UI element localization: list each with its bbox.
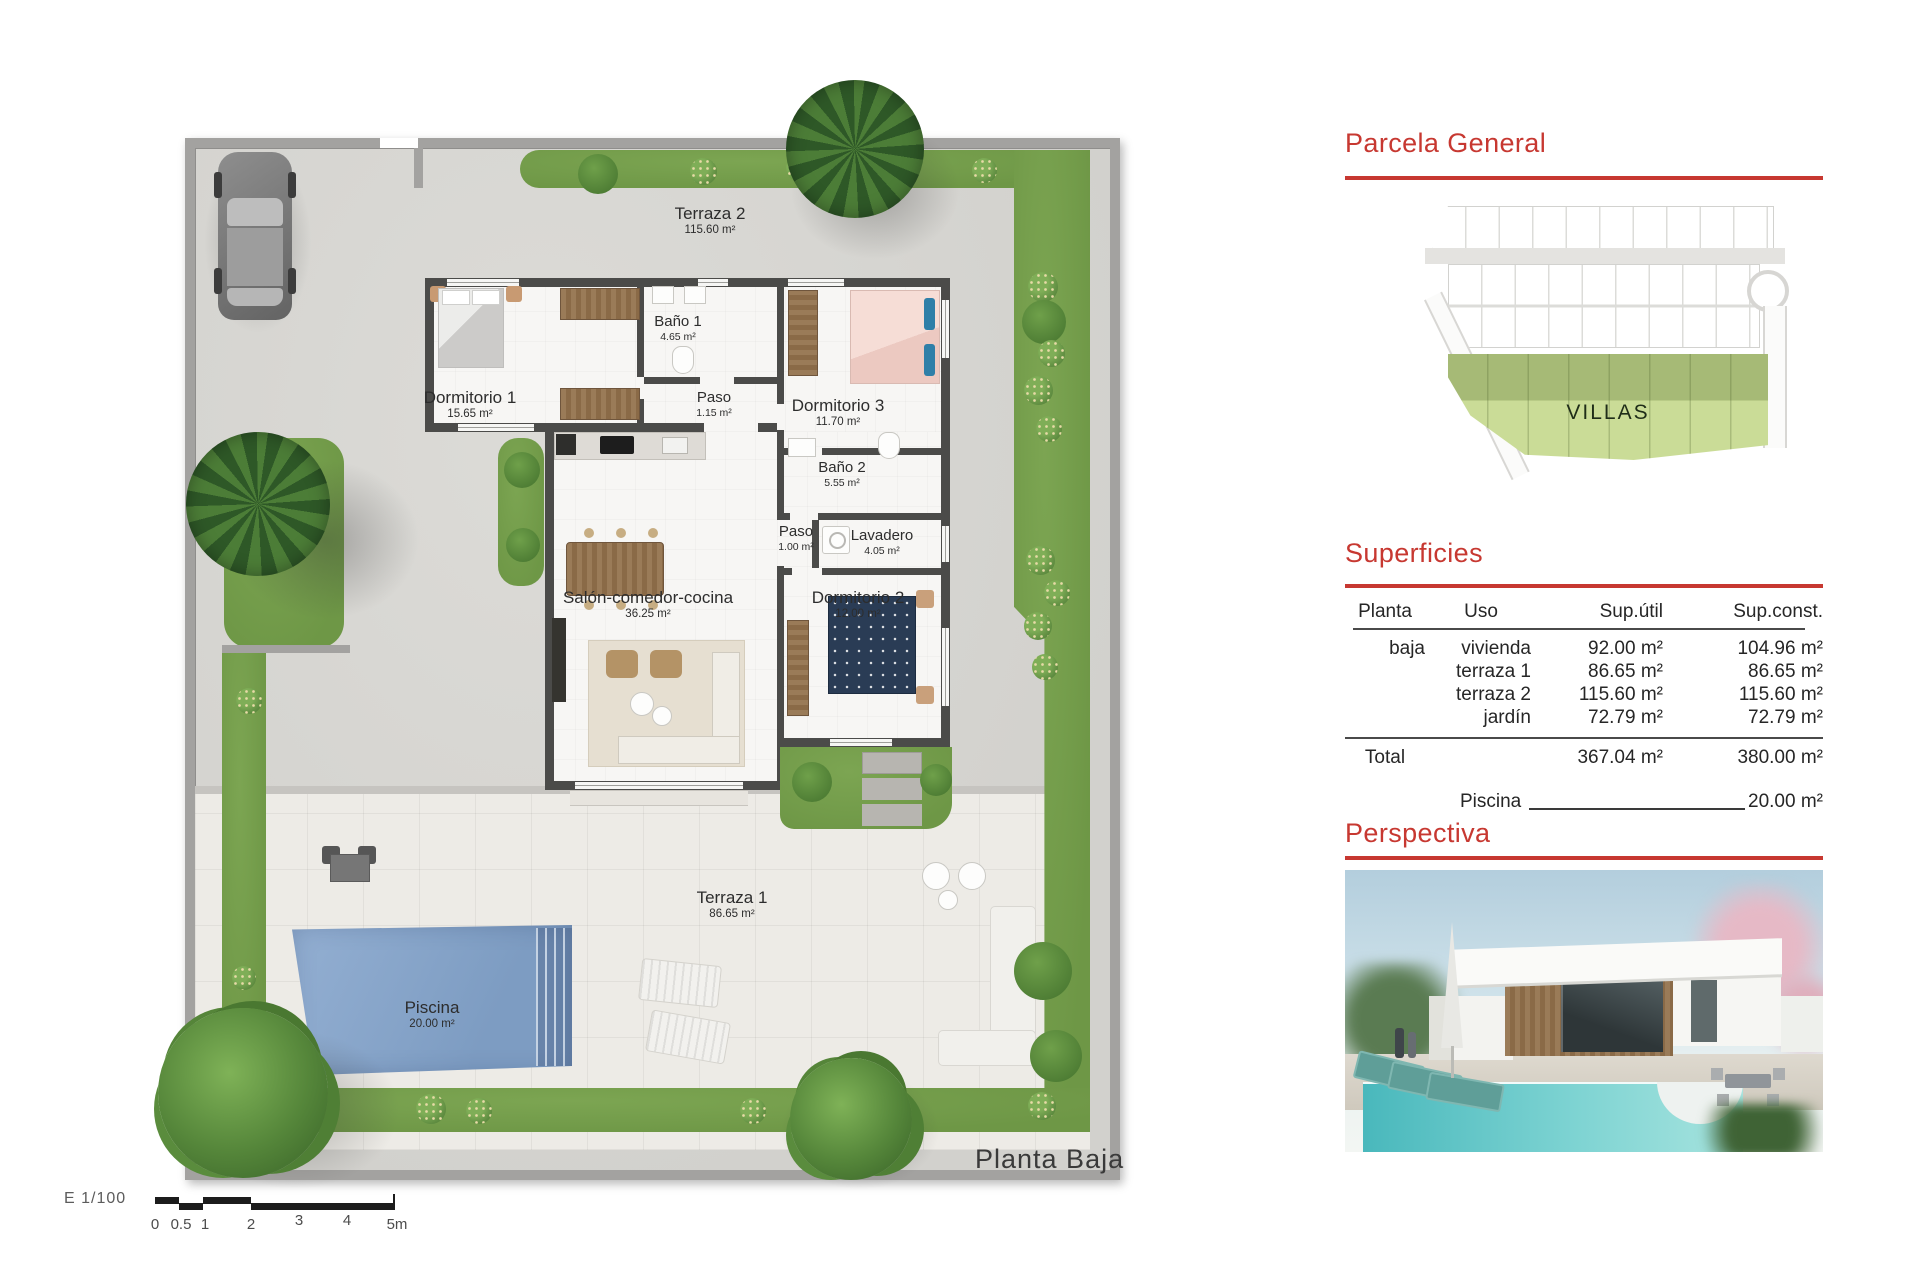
perspective-photo — [1345, 870, 1823, 1152]
flower-bush-icon — [1038, 340, 1065, 367]
cell-planta — [1345, 706, 1425, 729]
patio-slider-door — [575, 782, 743, 789]
person — [1408, 1032, 1416, 1058]
cell-sup-const: 86.65 m² — [1669, 660, 1823, 683]
table-total-row: Total 367.04 m² 380.00 m² — [1345, 746, 1823, 769]
room-name: Terraza 1 — [697, 888, 768, 907]
bush-icon — [506, 528, 540, 562]
room-name: Paso — [696, 390, 732, 407]
room-label-terraza-1: Terraza 1 86.65 m² — [697, 888, 768, 921]
flower-bush-icon — [416, 1094, 446, 1124]
bush-icon — [1014, 942, 1072, 1000]
flower-bush-icon — [1028, 272, 1058, 302]
pool-steps — [536, 928, 572, 1066]
window — [788, 279, 844, 286]
tv-unit — [552, 618, 566, 702]
section-title-parcela: Parcela General — [1345, 128, 1546, 159]
room-label-bano-2: Baño 2 5.55 m² — [818, 460, 866, 490]
room-area: 4.65 m² — [654, 332, 702, 344]
total-sup-const: 380.00 m² — [1669, 746, 1823, 769]
flower-bush-icon — [690, 158, 717, 185]
room-area: 36.25 m² — [563, 608, 733, 621]
scale-tick: 1 — [201, 1216, 209, 1233]
porch-step — [570, 790, 748, 806]
car-wheel — [288, 172, 296, 198]
pillow — [472, 290, 500, 305]
outdoor-side-table — [938, 890, 958, 910]
piscina-label: Piscina — [1460, 791, 1521, 813]
palm-tree-icon — [786, 80, 924, 218]
cell-sup-const: 72.79 m² — [1669, 706, 1823, 729]
toilet — [878, 432, 900, 459]
garden-door — [830, 739, 892, 746]
person — [1395, 1028, 1404, 1058]
room-area: 4.05 m² — [851, 546, 914, 558]
window — [458, 424, 534, 431]
tree-icon — [790, 1058, 912, 1180]
wall — [784, 513, 790, 520]
flower-bush-icon — [1024, 376, 1053, 405]
outdoor-chair — [922, 862, 950, 890]
wall — [545, 423, 554, 790]
cooktop — [600, 436, 634, 454]
room-label-paso-2: Paso 1.00 m² — [778, 524, 814, 554]
coffee-table — [630, 692, 654, 716]
bush-icon — [504, 452, 540, 488]
scale-tick: 5m — [387, 1216, 408, 1233]
parcel-diagram: VILLAS — [1395, 198, 1825, 468]
superficies-table: Planta Uso Sup.útil Sup.const. baja vivi… — [1345, 600, 1823, 813]
piscina-leader-line — [1529, 808, 1745, 810]
washer-door — [829, 532, 846, 549]
car-wheel — [288, 268, 296, 294]
room-name: Piscina — [405, 998, 460, 1017]
room-name: Salón-comedor-cocina — [563, 588, 733, 607]
entrance-wall-return — [414, 148, 423, 188]
outdoor-table — [330, 854, 370, 882]
room-area: 11.70 m² — [792, 416, 885, 429]
car-windshield — [227, 198, 283, 226]
parcel-plot-block — [1448, 264, 1760, 348]
pillow — [924, 298, 935, 330]
flower-bush-icon — [466, 1098, 492, 1124]
scale-bar-segment — [203, 1197, 251, 1204]
plan-sheet: Terraza 2 115.60 m² Dormitorio 1 15.65 m… — [0, 0, 1920, 1280]
glass-wall — [1561, 976, 1663, 1052]
villa-door — [1691, 980, 1717, 1042]
flower-bush-icon — [1044, 580, 1070, 606]
toilet — [672, 346, 694, 374]
wall — [822, 568, 950, 575]
sink — [652, 286, 674, 304]
sun-lounger — [638, 958, 722, 1008]
table-rule — [1345, 737, 1823, 739]
bush-icon — [578, 154, 618, 194]
wall — [758, 423, 777, 432]
piscina-row: Piscina 20.00 m² — [1345, 791, 1823, 813]
wall — [818, 513, 950, 520]
wall — [777, 430, 784, 520]
table-body: baja vivienda 92.00 m² 104.96 m² terraza… — [1345, 637, 1823, 729]
room-area: 1.00 m² — [778, 542, 814, 554]
room-name: Paso — [778, 524, 814, 541]
room-name: Terraza 2 — [675, 204, 746, 223]
pillow — [924, 344, 935, 376]
table-rule — [1353, 628, 1805, 630]
villa-left-wing — [1429, 996, 1513, 1060]
dining-chairs — [584, 528, 594, 538]
scale-tick: 2 — [247, 1216, 255, 1233]
flower-bush-icon — [1036, 416, 1062, 442]
room-area: 1.15 m² — [696, 408, 732, 420]
flower-bush-icon — [972, 158, 997, 183]
cell-uso: terraza 1 — [1431, 660, 1531, 683]
cell-sup-util: 92.00 m² — [1537, 637, 1663, 660]
nightstand — [506, 286, 522, 302]
room-area: 5.55 m² — [818, 478, 866, 490]
table-header-row: Planta Uso Sup.útil Sup.const. — [1345, 600, 1823, 628]
room-area: 15.65 m² — [424, 408, 517, 421]
cell-uso: vivienda — [1431, 637, 1531, 660]
table-row: terraza 2 115.60 m² 115.60 m² — [1345, 683, 1823, 706]
umbrella-pole — [1451, 1046, 1454, 1078]
window — [942, 526, 949, 562]
room-name: Baño 2 — [818, 460, 866, 477]
room-area: 12.00 m² — [812, 608, 905, 621]
flower-bush-icon — [1028, 1092, 1056, 1120]
plan-caption: Planta Baja — [975, 1144, 1124, 1175]
coffee-table — [652, 706, 672, 726]
armchair — [650, 650, 682, 678]
sink — [684, 286, 706, 304]
stepping-stones — [862, 752, 922, 774]
col-header-sup-const: Sup.const. — [1669, 600, 1823, 623]
room-name: Baño 1 — [654, 314, 702, 331]
room-label-paso-1: Paso 1.15 m² — [696, 390, 732, 420]
scale-label: E 1/100 — [64, 1190, 126, 1208]
room-name: Dormitorio 3 — [792, 396, 885, 415]
wardrobe — [787, 620, 809, 716]
window — [942, 300, 949, 358]
kitchen-appliance — [556, 434, 576, 455]
room-label-dormitorio-1: Dormitorio 1 15.65 m² — [424, 388, 517, 421]
flower-bush-icon — [740, 1098, 766, 1124]
cell-sup-const: 104.96 m² — [1669, 637, 1823, 660]
foreground-bush — [1690, 1104, 1823, 1152]
wardrobe — [560, 288, 640, 320]
cell-sup-util: 86.65 m² — [1537, 660, 1663, 683]
room-name: Dormitorio 2 — [812, 588, 905, 607]
piscina-value: 20.00 m² — [1748, 791, 1823, 813]
cell-planta — [1345, 683, 1425, 706]
cell-sup-const: 115.60 m² — [1669, 683, 1823, 706]
bush-icon — [1030, 1030, 1082, 1082]
window — [698, 279, 728, 286]
neighbor-villa — [1781, 996, 1823, 1052]
photo-table — [1725, 1074, 1771, 1088]
scale-tick: 0 — [151, 1216, 159, 1233]
sofa — [618, 736, 740, 764]
window — [942, 628, 949, 706]
section-underline — [1345, 176, 1823, 180]
entrance-gap — [380, 138, 418, 148]
car-wheel — [214, 268, 222, 294]
tree-icon — [158, 1008, 328, 1178]
room-area: 115.60 m² — [675, 224, 746, 237]
bush-icon — [792, 762, 832, 802]
kitchen-sink — [662, 437, 688, 454]
total-spacer — [1431, 746, 1531, 769]
room-label-dormitorio-2: Dormitorio 2 12.00 m² — [812, 588, 905, 621]
palm-tree-icon — [186, 432, 330, 576]
car-rear-window — [227, 288, 283, 306]
scale-bar-segment — [179, 1203, 203, 1210]
photo-chairs — [1711, 1068, 1723, 1080]
parcel-plot-row — [1432, 206, 1774, 250]
flower-bush-icon — [232, 966, 256, 990]
villa-right-wing — [1673, 970, 1781, 1046]
outdoor-sofa — [938, 1030, 1036, 1066]
scale-tick: 3 — [295, 1212, 303, 1229]
wall — [734, 377, 777, 384]
scale-bar-segment — [155, 1197, 179, 1204]
wall — [554, 423, 704, 432]
section-underline — [1345, 856, 1823, 860]
room-label-dormitorio-3: Dormitorio 3 11.70 m² — [792, 396, 885, 429]
nightstand — [916, 686, 934, 704]
table-row: jardín 72.79 m² 72.79 m² — [1345, 706, 1823, 729]
section-underline — [1345, 584, 1823, 588]
table-row: terraza 1 86.65 m² 86.65 m² — [1345, 660, 1823, 683]
bush-icon — [920, 764, 952, 796]
section-title-superficies: Superficies — [1345, 538, 1483, 569]
car-wheel — [214, 172, 222, 198]
wall — [777, 566, 784, 738]
cell-uso: terraza 2 — [1431, 683, 1531, 706]
cell-uso: jardín — [1431, 706, 1531, 729]
room-name: Dormitorio 1 — [424, 388, 517, 407]
wardrobe — [560, 388, 640, 420]
room-label-terraza-2: Terraza 2 115.60 m² — [675, 204, 746, 237]
parcel-road — [1425, 248, 1785, 264]
col-header-uso: Uso — [1431, 600, 1531, 623]
wall — [777, 278, 784, 404]
scale-bar-end-tick — [393, 1194, 395, 1206]
col-header-sup-util: Sup.útil — [1537, 600, 1663, 623]
room-area: 20.00 m² — [405, 1018, 460, 1031]
room-label-bano-1: Baño 1 4.65 m² — [654, 314, 702, 344]
room-label-lavadero: Lavadero 4.05 m² — [851, 528, 914, 558]
cell-planta — [1345, 660, 1425, 683]
flower-bush-icon — [1032, 654, 1058, 680]
bush-icon — [1022, 300, 1066, 344]
section-title-perspectiva: Perspectiva — [1345, 818, 1490, 849]
flower-bush-icon — [1026, 546, 1055, 575]
outdoor-chair — [958, 862, 986, 890]
cell-sup-util: 72.79 m² — [1537, 706, 1663, 729]
room-name: Lavadero — [851, 528, 914, 545]
villas-label: VILLAS — [1566, 401, 1649, 425]
flower-bush-icon — [1024, 612, 1052, 640]
wall — [644, 377, 700, 384]
scale-tick: 4 — [343, 1212, 351, 1229]
scale-tick: 0.5 — [171, 1216, 192, 1233]
armchair — [606, 650, 638, 678]
room-area: 86.65 m² — [697, 908, 768, 921]
col-header-planta: Planta — [1345, 600, 1425, 623]
table-row: baja vivienda 92.00 m² 104.96 m² — [1345, 637, 1823, 660]
scale-bar-segment — [251, 1203, 395, 1210]
flower-bush-icon — [236, 688, 262, 714]
wardrobe — [788, 290, 818, 376]
room-label-salon: Salón-comedor-cocina 36.25 m² — [563, 588, 733, 621]
cell-sup-util: 115.60 m² — [1537, 683, 1663, 706]
room-label-piscina: Piscina 20.00 m² — [405, 998, 460, 1031]
pillow — [442, 290, 470, 305]
total-label: Total — [1345, 746, 1425, 769]
garden-wall-stub — [222, 645, 350, 653]
wall — [784, 568, 792, 575]
window — [447, 279, 519, 286]
total-sup-util: 367.04 m² — [1537, 746, 1663, 769]
car-roof — [227, 228, 283, 286]
nightstand — [916, 590, 934, 608]
cell-planta: baja — [1345, 637, 1425, 660]
sink — [788, 438, 816, 457]
